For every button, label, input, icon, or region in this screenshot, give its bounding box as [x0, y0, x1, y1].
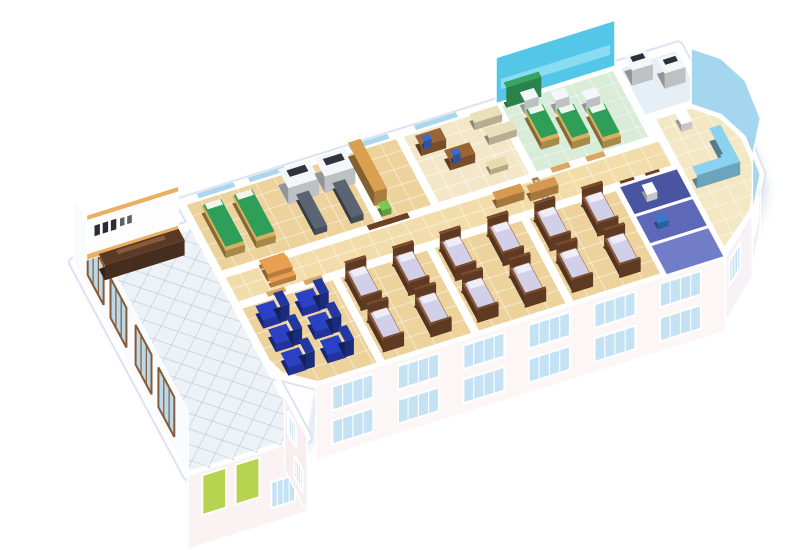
infusion-recliner-back-side — [306, 351, 315, 370]
reception-sign-window — [103, 221, 108, 233]
floorplan-canvas — [0, 0, 800, 550]
infusion-recliner-back-side — [345, 338, 354, 357]
reception-sign-window — [120, 217, 125, 226]
reception-sign-window — [111, 219, 116, 231]
reception-sign-window — [95, 224, 100, 236]
floorplan-scene — [0, 0, 800, 550]
leftwing-front-facade-door — [236, 457, 260, 504]
reception-sign-window — [127, 215, 132, 224]
leftwing-front-facade-door — [202, 468, 226, 515]
